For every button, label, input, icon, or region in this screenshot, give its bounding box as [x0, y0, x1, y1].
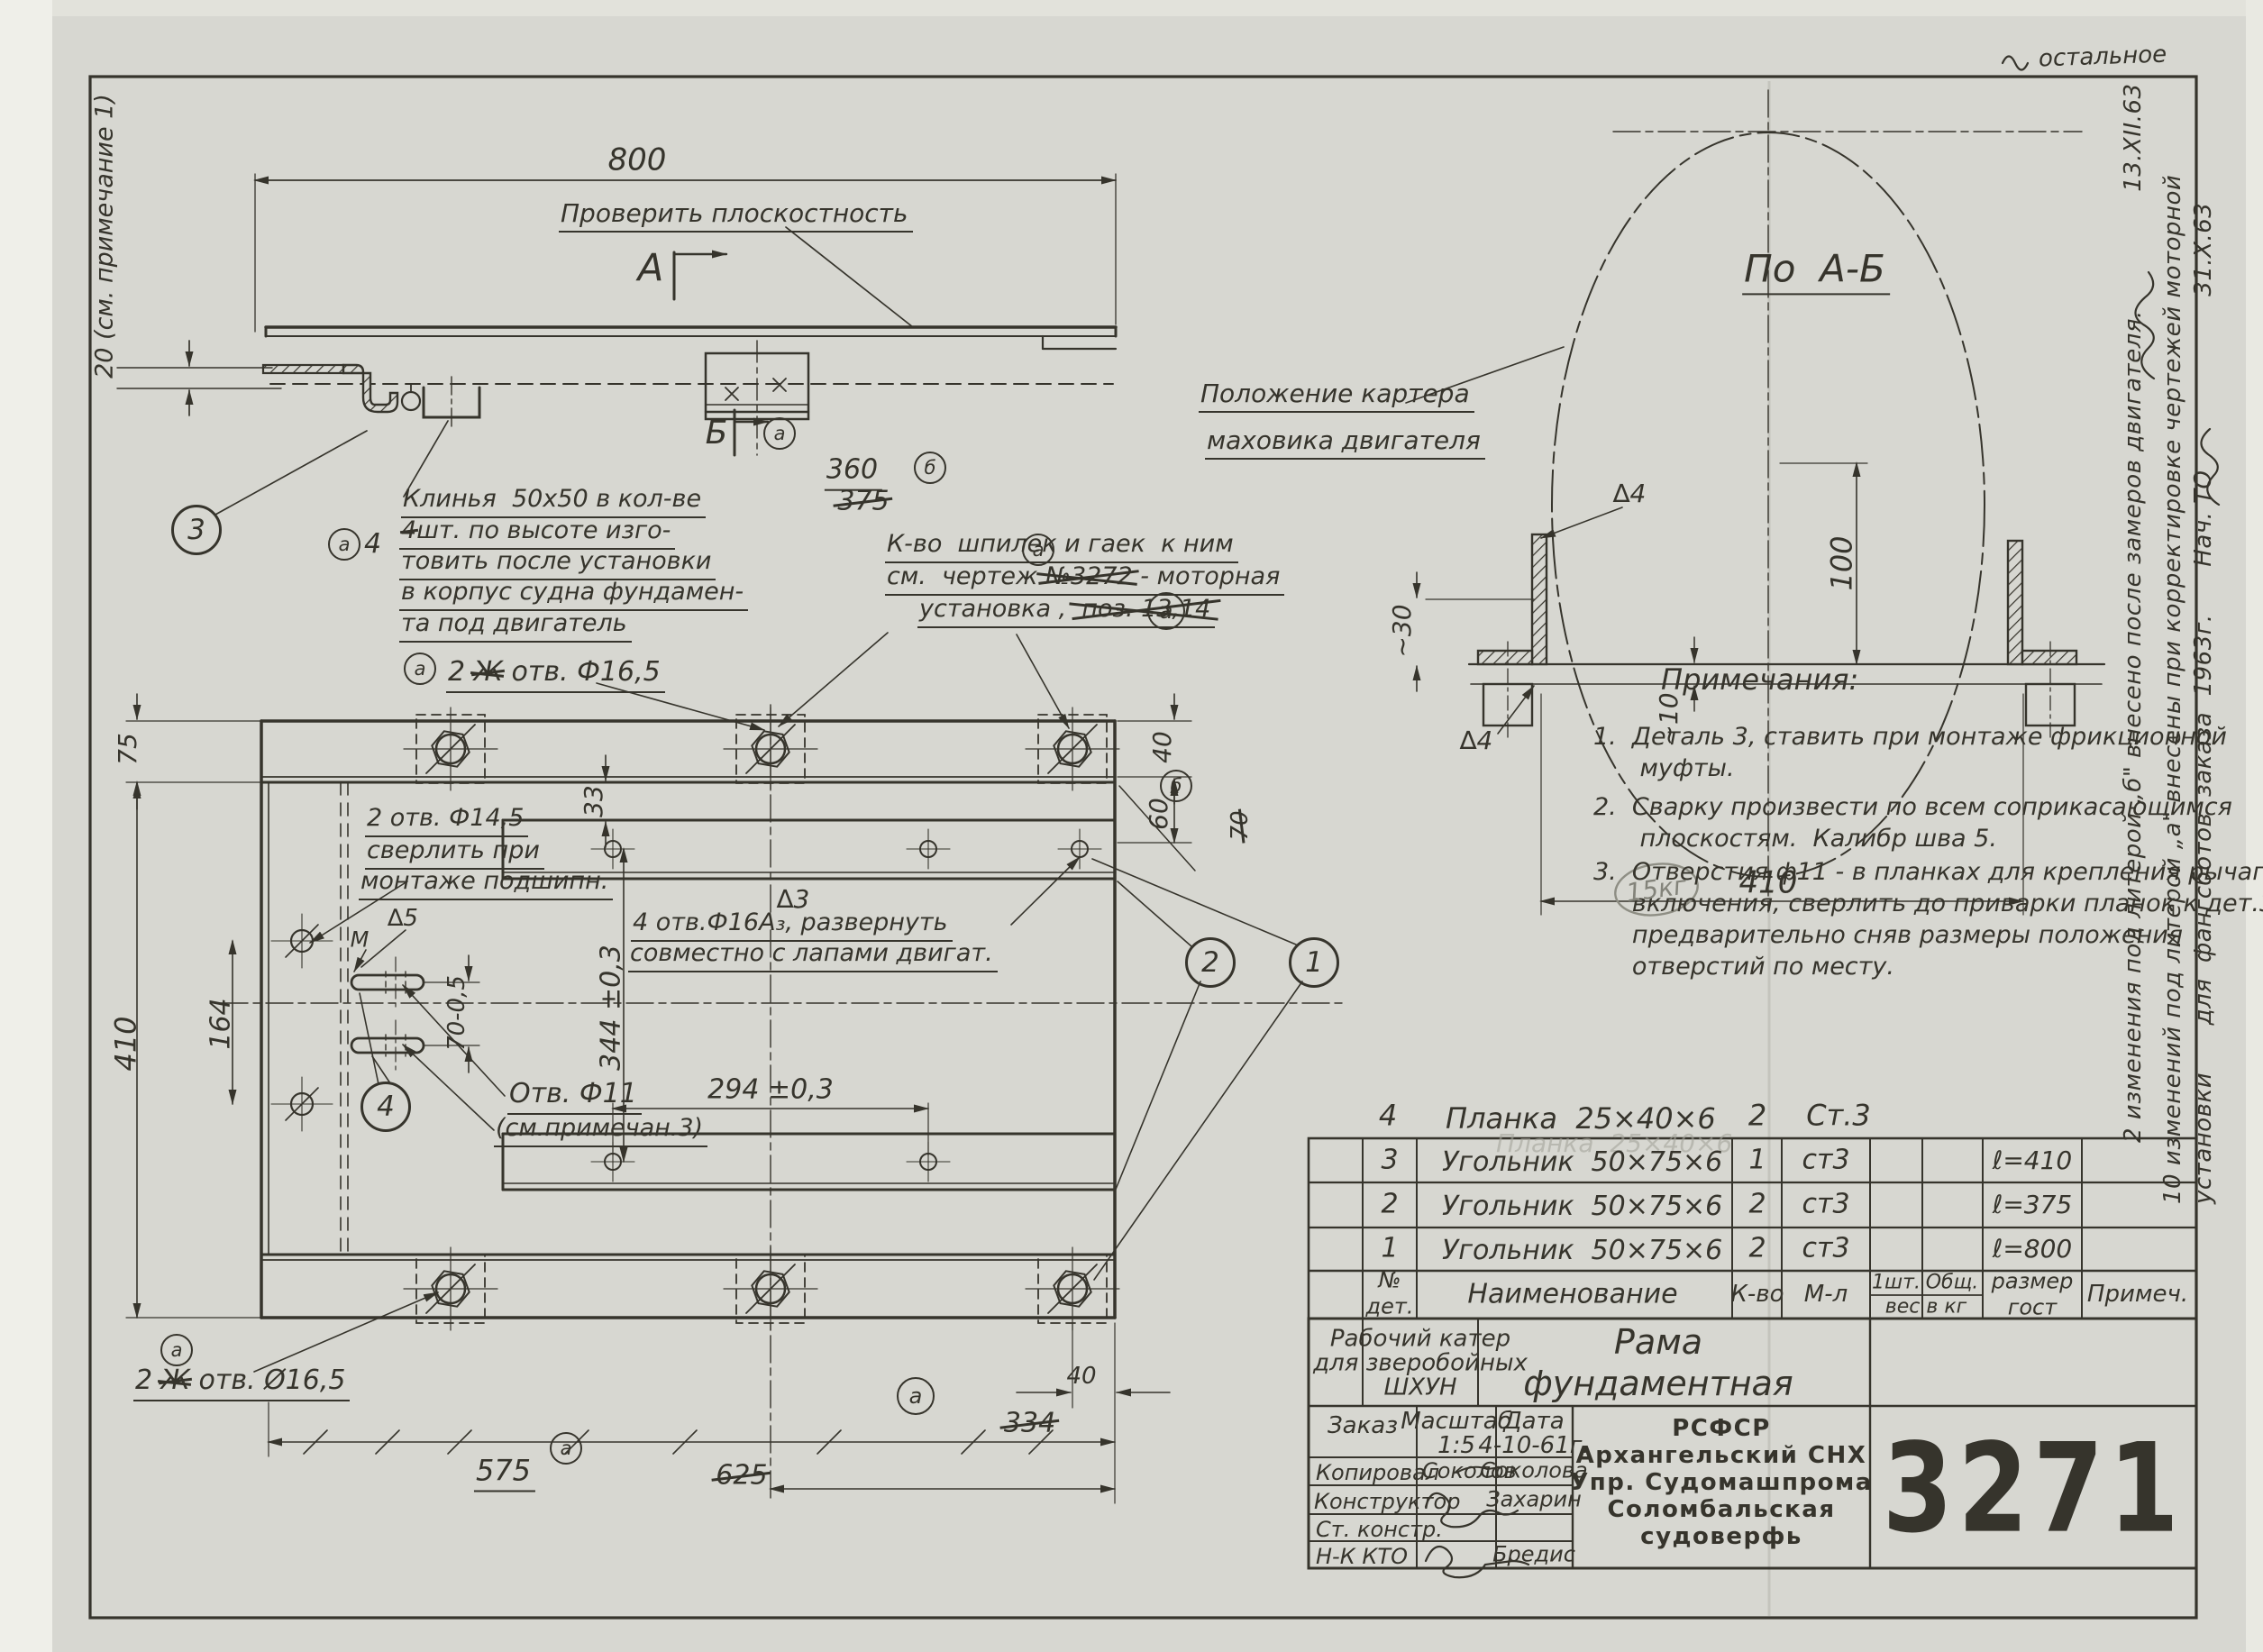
- stud-note-drawing-no-cancelled: №3272: [1045, 562, 1133, 592]
- wedge-qty-new: 4: [364, 528, 381, 561]
- wedge-note-line3: товить после установки: [399, 547, 716, 580]
- row1-mat: ст3: [1802, 1233, 1849, 1266]
- holes165-bottom-mark-circle: а: [160, 1334, 193, 1366]
- weld-mark-bottom: ∆4: [1460, 726, 1493, 756]
- header-note: Примеч.: [2087, 1281, 2188, 1310]
- dim-75: 75: [113, 733, 143, 765]
- wedge-note-line1: Клинья 50х50 в кол-ве: [401, 485, 706, 518]
- hole11-line2: (см.примечан.3): [494, 1114, 707, 1147]
- row1-size: ℓ=800: [1993, 1234, 2072, 1264]
- row3-name: Угольник 50×75×6: [1442, 1146, 1722, 1180]
- dim-334-cancelled: 334: [1004, 1408, 1055, 1441]
- organization: РСФСР Архангельский СНХ Упр. Судомашпром…: [1570, 1415, 1873, 1550]
- stud-note-pos-cancelled: поз. 13,14: [1081, 595, 1210, 625]
- wedge-note-line4: в корпус судна фундамен-: [399, 578, 748, 611]
- row2-name: Угольник 50×75×6: [1442, 1191, 1722, 1224]
- revision-mark-b-circle: б: [914, 452, 946, 484]
- extra-row-mat: Ст.3: [1806, 1098, 1871, 1133]
- row1-num: 1: [1381, 1233, 1398, 1266]
- role-nk-kto: Н-К КТО: [1316, 1544, 1408, 1570]
- weld-mark-5: ∆5: [388, 905, 418, 934]
- dim-410-plan: 410: [108, 1016, 143, 1071]
- notes-heading: Примечания:: [1661, 662, 1858, 698]
- holes165-top-mark-circle: а: [404, 653, 436, 685]
- balloon-detail-4: 4: [360, 1082, 411, 1132]
- extra-row-qty: 2: [1748, 1098, 1766, 1133]
- stud-note-line1: К-во шпилек и гаек к ним: [885, 530, 1238, 563]
- role-copied: Копировал: [1316, 1460, 1439, 1486]
- row1-qty: 2: [1748, 1233, 1766, 1266]
- header-name: Наименование: [1467, 1279, 1677, 1312]
- row3-mat: ст3: [1802, 1145, 1849, 1178]
- dim-575: 575: [474, 1453, 535, 1492]
- row3-size: ℓ=410: [1993, 1145, 2072, 1176]
- extra-row-num: 4: [1379, 1098, 1397, 1133]
- dim-800: 800: [608, 141, 667, 178]
- stud-note-line2b: - моторная: [1133, 562, 1281, 590]
- wedge-note-old-qty: 4: [401, 516, 416, 546]
- section-mark-a: А: [638, 244, 664, 290]
- dim-625-cancelled: 625: [716, 1460, 767, 1493]
- hole11-line1: Отв. Ф11: [507, 1078, 642, 1115]
- holes145-line2: сверлить при: [365, 836, 544, 870]
- dim-164: 164: [205, 998, 239, 1049]
- check-flatness-note: Проверить плоскостность: [559, 198, 913, 233]
- stud-note-line2: см. чертеж №3272 - моторная: [885, 562, 1284, 596]
- revision-note-b: 2 изменения под литерой „б" внесено посл…: [2120, 83, 2147, 1143]
- drawing-title: Рама фундаментная: [1523, 1321, 1793, 1404]
- crankcase-note-line2: маховика двигателя: [1205, 425, 1485, 460]
- holes165-bottom-label: 2 Ж отв. Ø16,5: [133, 1364, 350, 1401]
- wedge-note-line2-rest: шт. по высоте изго-: [416, 516, 671, 544]
- holes165-bottom-text: отв. Ø16,5: [190, 1364, 346, 1396]
- balloon-detail-2: 2: [1185, 937, 1236, 988]
- surface-finish-note: остальное: [2038, 41, 2167, 75]
- drawing-labels: 800 20 (см. примечание 1) Проверить плос…: [0, 0, 2263, 1652]
- section-mark-b: Б: [706, 414, 728, 453]
- header-size: размер гост: [1992, 1269, 2074, 1322]
- wedge-revision-mark-circle: а: [328, 528, 360, 561]
- dim-70-cancelled: 70: [1227, 810, 1256, 840]
- balloon-detail-3: 3: [171, 505, 222, 555]
- name-designer: Захарин: [1486, 1486, 1582, 1512]
- scale-value: 1:5: [1437, 1432, 1475, 1461]
- stud-note-line2a: см. чертеж: [887, 562, 1045, 590]
- holes145-line1: 2 отв. Ф14,5: [365, 804, 528, 837]
- name-nk-kto: Бредис: [1492, 1541, 1575, 1567]
- holes165-top-text: отв. Ф16,5: [503, 656, 661, 688]
- revision-mark-a-circle: а: [763, 417, 796, 450]
- row2-mat: ст3: [1802, 1189, 1849, 1222]
- holes145-line3: монтаже подшипн.: [359, 867, 613, 900]
- wedge-note-line2: 4шт. по высоте изго-: [399, 516, 675, 550]
- drawing-sheet: 800 20 (см. примечание 1) Проверить плос…: [0, 0, 2263, 1652]
- row2-size: ℓ=375: [1993, 1190, 2072, 1220]
- row2-num: 2: [1381, 1189, 1398, 1222]
- dim-60: 60: [1144, 798, 1174, 830]
- dim-344: 344 ±0,3: [596, 945, 629, 1071]
- gap-note: 20 (см. примечание 1): [91, 94, 121, 379]
- section-title: По А-Б: [1742, 245, 1890, 295]
- header-weight-one: 1шт.: [1872, 1272, 1921, 1296]
- header-weight-total: Общ.: [1926, 1272, 1979, 1296]
- header-num: № дет.: [1366, 1268, 1414, 1321]
- dim-30: ~30: [1387, 604, 1418, 657]
- wedge-note-line5: та под двигатель: [399, 609, 632, 643]
- dim-375-cancelled: 375: [837, 486, 889, 519]
- holes16-line1: 4 отв.Ф16А₃, развернуть: [631, 908, 953, 942]
- crankcase-note-line1: Положение картера: [1199, 379, 1474, 413]
- dim-294: 294 ±0,3: [707, 1074, 834, 1108]
- dim-40-bottom: 40: [1066, 1363, 1096, 1392]
- header-mat: М-л: [1804, 1281, 1848, 1310]
- balloon-detail-1: 1: [1289, 937, 1339, 988]
- stud-note-mark-a2-circle: а: [1147, 592, 1185, 630]
- holes16-line2: совместно с лапами двигат.: [628, 939, 998, 972]
- datum-mark-m: М: [351, 926, 370, 953]
- row3-qty: 1: [1748, 1145, 1766, 1178]
- mark-575-circle: а: [550, 1432, 582, 1465]
- holes165-bottom-cancelled: Ж: [161, 1364, 190, 1398]
- object-name: Рабочий катер для зверобойных ШХУН: [1313, 1328, 1528, 1401]
- weld-mark-top: ∆4: [1613, 479, 1647, 509]
- stud-note-line3a: установка ,: [919, 595, 1081, 623]
- dim-70: 70-0,5: [443, 975, 472, 1051]
- drawing-number: 3271: [1883, 1414, 2184, 1565]
- header-weight-kg: вес в кг: [1885, 1296, 1966, 1320]
- header-qty: К-во: [1730, 1281, 1784, 1310]
- revision-note-a-line2: установки для фангсботов заказа 1963г. Н…: [2190, 203, 2217, 1204]
- row2-qty: 2: [1748, 1189, 1766, 1222]
- holes165-top-label: 2 Ж отв. Ф16,5: [446, 656, 665, 693]
- row3-num: 3: [1381, 1145, 1398, 1178]
- dim-40-right: 40: [1147, 731, 1178, 763]
- role-designer: Конструктор: [1314, 1489, 1460, 1515]
- holes165-top-cancelled: Ж: [474, 656, 503, 689]
- dim-33: 33: [579, 785, 609, 817]
- mark-334-circle: а: [897, 1377, 935, 1415]
- order-label: Заказ: [1328, 1412, 1398, 1441]
- stud-note-mark-a-circle: а: [1022, 534, 1054, 566]
- revision-note-a-line1: 10 изменений под литерой „а" внесены при…: [2159, 175, 2186, 1204]
- role-senior: Ст. констр.: [1316, 1517, 1443, 1543]
- row1-name: Угольник 50×75×6: [1442, 1235, 1722, 1268]
- dim-100: 100: [1824, 535, 1859, 590]
